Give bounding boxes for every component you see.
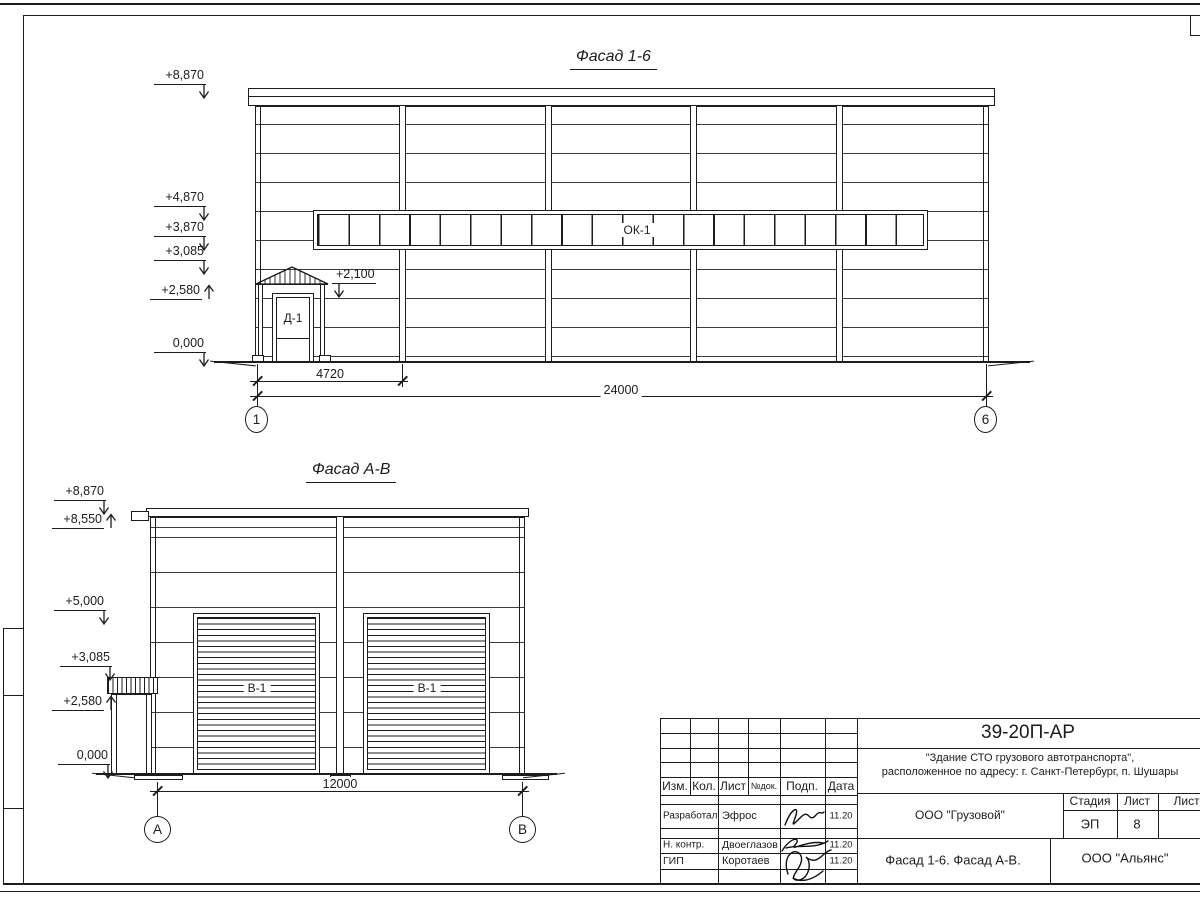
grid-axis-bubble: 6 xyxy=(974,406,997,433)
person-name: Двоеглазов xyxy=(722,839,778,851)
corner-stamp-box-line xyxy=(1190,15,1191,35)
elevation-mark: +2,580 xyxy=(150,283,202,300)
corner-stamp-box-bottom xyxy=(1190,35,1200,36)
extension-line xyxy=(402,364,403,387)
elevation-mark: +8,870 xyxy=(154,68,206,85)
project-name-line2: расположенное по адресу: г. Санкт-Петерб… xyxy=(882,766,1178,778)
stage-value: ЭП xyxy=(1081,817,1100,832)
date-value: 11.20 xyxy=(829,811,852,822)
column-header-kol: Кол. xyxy=(692,779,716,793)
elevation-arrow-down-icon xyxy=(103,666,117,682)
dimension-line xyxy=(250,381,408,382)
title-block-line xyxy=(660,718,1200,719)
elevation-mark: +8,550 xyxy=(52,512,104,529)
title-block-line xyxy=(1063,810,1200,811)
role-label: Разработал xyxy=(663,811,717,822)
wall-edge-line xyxy=(983,106,984,361)
title-block-line xyxy=(1050,838,1051,883)
door-post xyxy=(320,285,325,362)
title-block-line xyxy=(1063,793,1064,838)
title-block-line xyxy=(1158,793,1159,838)
margin-strip-divider xyxy=(3,808,23,809)
elevation-mark: +2,100 xyxy=(332,267,376,284)
elevation-arrow-down-icon xyxy=(197,260,211,276)
canopy-fascia-line xyxy=(256,284,328,285)
elevation-mark: 0,000 xyxy=(154,336,206,353)
parapet-cap-line xyxy=(248,96,995,97)
frame-inner-bottom-line xyxy=(3,883,1200,885)
title-block-line xyxy=(660,804,857,805)
title-block-line xyxy=(718,718,719,883)
grid-axis-bubble: 1 xyxy=(245,406,268,433)
dimension-value: 4720 xyxy=(313,367,347,381)
title-block-line xyxy=(660,795,857,796)
person-name: Эфрос xyxy=(722,810,757,822)
role-label: ГИП xyxy=(663,855,684,867)
facade-1-6-title: Фасад 1-6 xyxy=(570,48,657,70)
extension-line xyxy=(257,364,258,408)
dimension-line xyxy=(150,791,529,792)
column-header-list: Лист xyxy=(720,779,746,793)
grid-axis-bubble: А xyxy=(144,816,171,843)
grid-axis-bubble: В xyxy=(509,816,536,843)
drawing-title-cell: Фасад 1-6. Фасад А-В. xyxy=(885,853,1020,868)
facade-a-v-title: Фасад А-В xyxy=(306,461,396,483)
roller-gate-label: В-1 xyxy=(244,681,271,695)
margin-strip-divider xyxy=(3,628,23,629)
elevation-arrow-up-icon xyxy=(202,284,216,300)
margin-strip-divider xyxy=(3,695,23,696)
elevation-mark: +8,870 xyxy=(54,484,106,501)
elevation-arrow-down-icon xyxy=(97,610,111,626)
title-block-line xyxy=(660,718,661,883)
elevation-arrow-up-icon xyxy=(104,513,118,529)
title-block-line xyxy=(1117,793,1118,838)
dimension-value: 24000 xyxy=(601,383,642,397)
column-line xyxy=(336,517,344,773)
wall-edge-line xyxy=(155,517,156,773)
sheet-number: 8 xyxy=(1133,817,1140,832)
extension-line xyxy=(986,364,987,408)
document-code: 39-20П-АР xyxy=(981,722,1075,744)
signature-scribble xyxy=(781,803,827,831)
elevation-mark: +3,870 xyxy=(154,220,206,237)
door-panel-divider xyxy=(276,338,310,339)
footing-pad xyxy=(134,775,183,780)
column-header-sign: Подп. xyxy=(786,779,818,793)
project-name-line1: "Здание СТО грузового автотранспорта", xyxy=(926,752,1135,764)
elevation-mark: +4,870 xyxy=(154,190,206,207)
door-canopy-gable xyxy=(254,264,330,286)
customer-organization: ООО "Грузовой" xyxy=(915,808,1005,822)
elevation-arrow-down-icon xyxy=(197,352,211,368)
column-header-izm: Изм. xyxy=(662,779,688,793)
door-leaf xyxy=(276,297,310,362)
elevation-arrow-down-icon xyxy=(101,764,115,780)
ribbon-window-label: ОК-1 xyxy=(620,223,655,237)
frame-inner-left-line xyxy=(23,15,24,883)
dimension-value: 12000 xyxy=(320,777,361,791)
signature-scribble xyxy=(778,844,834,884)
door-label: Д-1 xyxy=(283,311,304,325)
frame-inner-top-line xyxy=(23,15,1200,16)
annex-wall-line xyxy=(146,694,147,774)
title-block-line xyxy=(660,748,1200,749)
elevation-arrow-up-icon xyxy=(104,695,118,711)
elevation-mark: +3,085 xyxy=(154,244,206,261)
title-block-line xyxy=(857,718,858,883)
sheet-header: Лист xyxy=(1124,794,1150,808)
door-post xyxy=(258,285,263,362)
title-block-line xyxy=(748,718,749,795)
elevation-mark: +5,000 xyxy=(54,594,106,611)
title-block-line xyxy=(690,718,691,795)
roller-gate-label: В-1 xyxy=(414,681,441,695)
frame-outer-bottom-line xyxy=(0,891,1200,892)
wall-edge-line xyxy=(519,517,520,773)
elevation-arrow-down-icon xyxy=(332,283,346,299)
elevation-arrow-down-icon xyxy=(197,84,211,100)
role-label: Н. контр. xyxy=(663,840,704,851)
elevation-mark: +2,580 xyxy=(52,694,104,711)
title-block-line xyxy=(660,828,857,829)
elevation-mark: +3,085 xyxy=(60,650,112,667)
frame-outer-top-line xyxy=(0,3,1200,5)
drawing-sheet: Фасад 1-6 ОК-1 xyxy=(0,0,1200,900)
design-organization: ООО "Альянс" xyxy=(1082,851,1169,866)
ground-line xyxy=(214,361,1030,363)
elevation-mark: 0,000 xyxy=(58,748,110,765)
column-header-date: Дата xyxy=(828,779,855,793)
margin-strip-left-line xyxy=(3,628,4,883)
roof-outlet-pipe xyxy=(131,511,149,521)
parapet-cap xyxy=(146,508,529,517)
column-header-doc: №док. xyxy=(751,781,777,791)
stage-header: Стадия xyxy=(1070,794,1111,808)
sheets-header: Листов xyxy=(1174,794,1200,808)
person-name: Коротаев xyxy=(722,855,770,867)
